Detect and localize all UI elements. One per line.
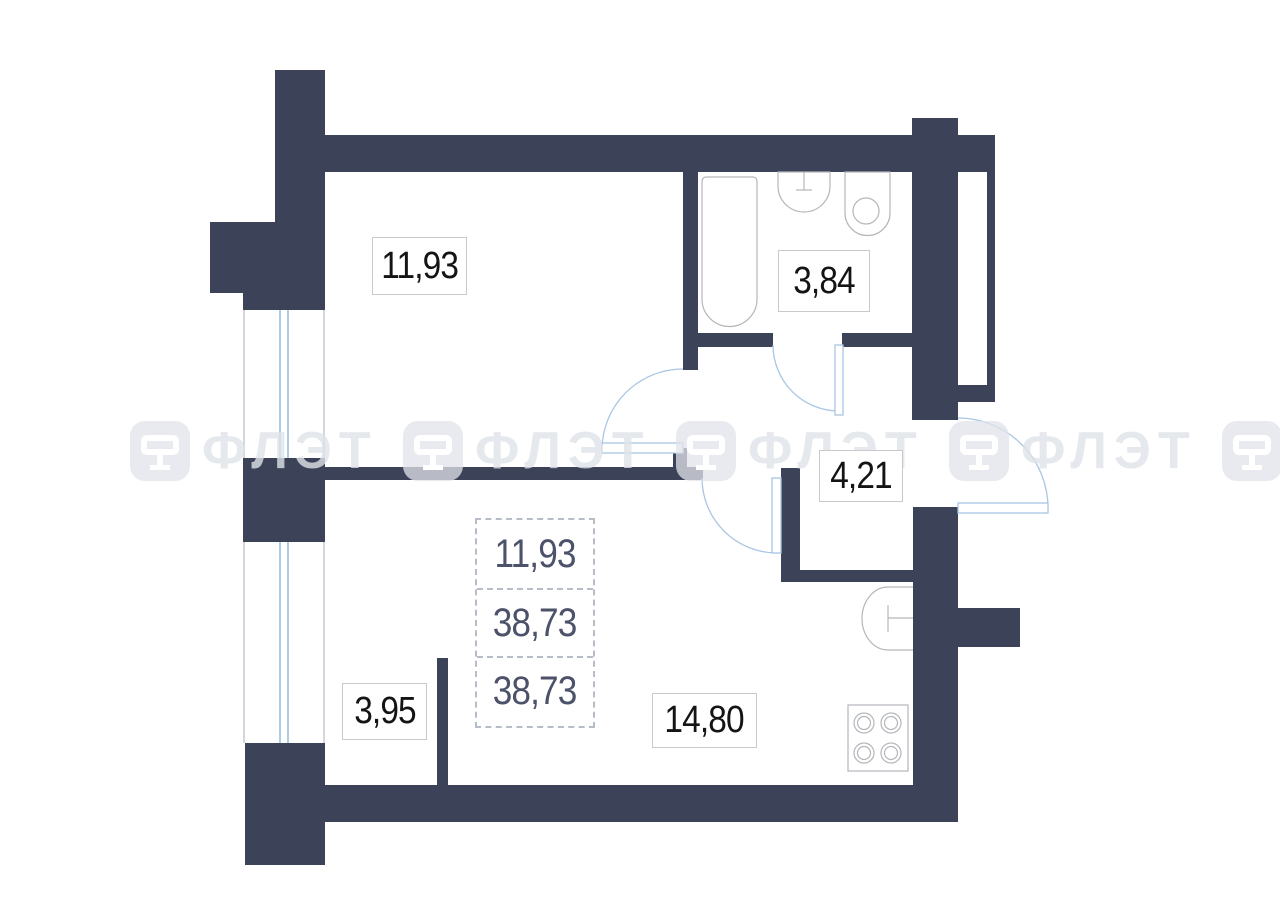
bedroom-door-arc [602,369,683,450]
wall-right-column [912,118,958,420]
wall-right-stub [958,608,1020,647]
wall-bathroom-bottom-right [842,333,912,347]
wall-hall-kitchen-vertical [781,468,800,582]
toilet-icon [845,172,890,236]
bedroom-door-leaf [602,443,683,453]
summary-value: 11,93 [494,532,575,577]
summary-value: 38,73 [493,601,577,646]
wall-bedroom-living [325,467,703,480]
area-summary-box: 11,93 38,73 38,73 [475,518,595,728]
bedroom-door [602,369,683,453]
doors-layer [602,345,1048,553]
wall-bottom [245,785,958,822]
living-door-arc [702,478,777,553]
room-area-label-wardrobe: 3,95 [342,683,427,740]
bathtub-icon [702,177,757,327]
washbasin-icon [778,172,830,212]
summary-value: 38,73 [493,669,577,714]
wall-hall-kitchen-horizontal [800,570,913,582]
entrance-door-arc [958,418,1048,508]
room-area-value: 11,93 [381,245,458,288]
summary-total-area-row: 38,73 [477,588,593,656]
room-area-value: 3,95 [354,690,416,733]
bathroom-door-leaf [835,345,843,415]
bathroom-door [773,345,843,415]
room-area-label-hall: 4,21 [819,450,903,502]
room-area-value: 14,80 [665,699,744,742]
bathroom-door-arc [773,345,839,411]
wall-shaft-bottom-border [958,385,995,402]
wall-top [325,135,912,172]
room-area-label-kitchen-living: 14,80 [652,693,757,748]
stove-icon [848,705,908,771]
wall-top-right-piece [958,135,995,172]
wall-bathroom-bottom-left [698,333,773,347]
floor-plan: ФЛЭТ ФЛЭТ ФЛЭТ ФЛЭТ ФЛЭТ 11,93 3,84 4,21… [0,0,1280,905]
living-door [702,478,781,553]
window-lower [243,542,325,743]
window-upper [243,310,325,458]
summary-living-area-row: 11,93 [477,520,593,588]
floor-plan-drawing [0,0,1280,905]
wall-right-lower [913,507,958,822]
wall-wardrobe-partition [437,658,448,787]
entrance-door-leaf [958,503,1048,513]
room-area-value: 3,84 [793,260,855,303]
room-area-label-bedroom: 11,93 [372,237,467,295]
living-door-leaf [772,478,781,553]
wall-bedroom-bathroom [683,172,698,370]
room-area-value: 4,21 [830,455,892,498]
room-area-label-bathroom: 3,84 [778,250,870,312]
wall-left-pier-block [210,222,325,293]
entrance-door [958,418,1048,513]
wall-left-mid-pier [243,458,325,542]
wall-shaft-right-border [987,172,995,402]
kitchen-sink-icon [862,587,913,650]
summary-sale-area-row: 38,73 [477,656,593,724]
wall-left-pier [243,290,325,312]
wall-top-left-column [275,70,325,230]
